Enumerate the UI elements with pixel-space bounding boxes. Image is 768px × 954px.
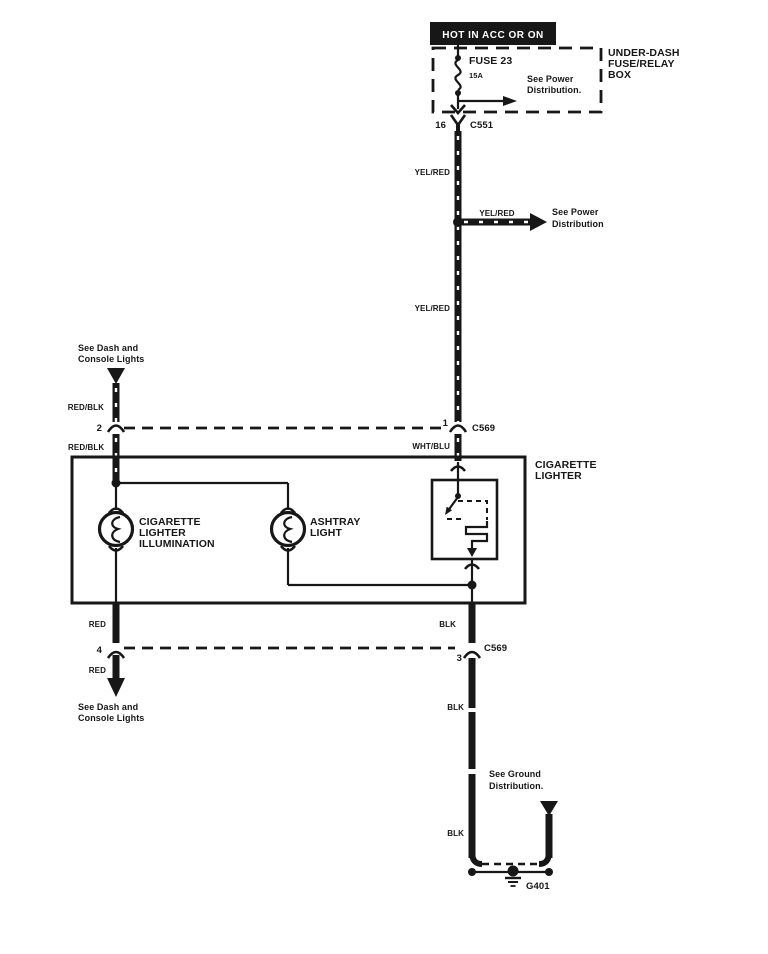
banner-label: HOT IN ACC OR ON: [442, 30, 544, 41]
lighter-element-icon: [432, 462, 497, 585]
wire-label-yelred-branch: YEL/RED: [479, 209, 514, 218]
c551-name-label: C551: [470, 120, 494, 131]
dash-console-lights-branch-top: See Dash and Console Lights RED/BLK: [68, 343, 145, 422]
dash-note-bottom-line2: Console Lights: [78, 713, 144, 723]
bulb-ashtray-icon: [272, 509, 305, 551]
cigarette-lighter-assembly: CIGARETTE LIGHTER CIGARETTE LIGHTER ILLU…: [72, 457, 597, 603]
ground-dot-left: [468, 868, 476, 876]
wire-label-yelred-upper: YEL/RED: [415, 168, 450, 177]
fuse-element: [455, 60, 460, 90]
bulb-illumination-icon: [100, 509, 133, 551]
arrow-down-icon: [107, 368, 125, 384]
dash-note-bottom-line1: See Dash and: [78, 702, 138, 712]
dash-console-lights-branch-bottom: RED See Dash and Console Lights: [78, 655, 144, 723]
ground-icon: [505, 866, 521, 887]
dash-note-top-line2: Console Lights: [78, 354, 144, 364]
wire-break: [467, 769, 477, 774]
branch-note-line2: Distribution: [552, 219, 604, 229]
power-distribution-branch: YEL/RED See Power Distribution: [453, 207, 604, 231]
fuse-name-label: FUSE 23: [469, 55, 512, 67]
wire-label-red-upper: RED: [89, 620, 106, 629]
element-dashed-path-right: [458, 501, 487, 520]
wire-label-red-lower: RED: [89, 666, 106, 675]
branch-note-line1: See Power: [552, 207, 599, 217]
pin3-cap-icon: [464, 652, 480, 658]
arrowhead-right-icon: [530, 213, 547, 231]
connector-y-icon: [451, 115, 465, 132]
element-coil: [466, 521, 487, 550]
c569-bottom-pin-left: 4: [97, 645, 103, 656]
ground-path: BLK BLK See Ground Distribution. G401: [447, 658, 558, 892]
c569-bottom-pin-right: 3: [457, 653, 462, 664]
ground-id-label: G401: [526, 881, 550, 892]
wire-label-whtblu: WHT/BLU: [412, 442, 450, 451]
wire-label-blk-lower: BLK: [447, 829, 464, 838]
wire-break: [467, 708, 477, 712]
arrow-down-icon: [540, 801, 558, 816]
c569-top-name-label: C569: [472, 423, 495, 434]
bulb-filament: [284, 517, 292, 542]
element-arrow-down: [467, 548, 477, 557]
pin2-cap-icon: [108, 426, 124, 433]
bulb-right-label-line2: LIGHT: [310, 527, 342, 539]
bulb-filament: [112, 517, 120, 542]
connector-c551: 16 C551: [435, 115, 494, 132]
connector-c569-bottom: 4 3 C569: [97, 643, 508, 664]
power-distribution-arrow-internal: [458, 96, 517, 106]
ground-dot-right: [545, 868, 553, 876]
wire-label-yelred-lower: YEL/RED: [415, 304, 450, 313]
elbow-right: [539, 852, 549, 864]
wire-red-upper-segment: RED: [89, 603, 116, 643]
component-box-label-line2: LIGHTER: [535, 470, 582, 482]
wire-yelred-main: YEL/RED YEL/RED: [415, 131, 458, 422]
wire-label-blk-mid: BLK: [447, 703, 464, 712]
ground-terminal: [508, 866, 519, 877]
fuse-icon: [455, 55, 461, 96]
ground-note-line2: Distribution.: [489, 781, 543, 791]
c569-bottom-name-label: C569: [484, 643, 507, 654]
c551-pin-label: 16: [435, 120, 446, 131]
arrow-down-icon: [107, 678, 125, 697]
arrowhead-right-icon: [503, 96, 517, 106]
dash-note-top-line1: See Dash and: [78, 343, 138, 353]
bulb-left-label-line3: ILLUMINATION: [139, 538, 215, 550]
ground-note-line1: See Ground: [489, 769, 541, 779]
c569-top-pin-left: 2: [97, 423, 102, 434]
wire-label-redblk-upper: RED/BLK: [68, 403, 104, 412]
fuse-note-line1: See Power: [527, 74, 574, 84]
power-source-banner: HOT IN ACC OR ON: [430, 22, 556, 45]
wiring-diagram-canvas: HOT IN ACC OR ON FUSE 23 15A See Power D…: [0, 0, 768, 954]
wire-blk-upper-segment: BLK: [439, 603, 472, 643]
connector-c569-top: 2 1 C569: [97, 418, 496, 434]
wire-label-blk-upper: BLK: [439, 620, 456, 629]
pin1-cap-icon: [450, 426, 466, 433]
elbow-left: [472, 852, 482, 864]
fuse-note-line2: Distribution.: [527, 85, 581, 95]
fuse-box-title-line3: BOX: [608, 69, 631, 81]
c569-top-pin-right: 1: [443, 418, 449, 429]
under-dash-fuse-relay-box: FUSE 23 15A See Power Distribution. UNDE…: [433, 45, 680, 113]
wiring-diagram-page: HOT IN ACC OR ON FUSE 23 15A See Power D…: [0, 0, 768, 954]
fuse-rating-label: 15A: [469, 71, 484, 80]
wire-label-redblk-lower: RED/BLK: [68, 443, 104, 452]
